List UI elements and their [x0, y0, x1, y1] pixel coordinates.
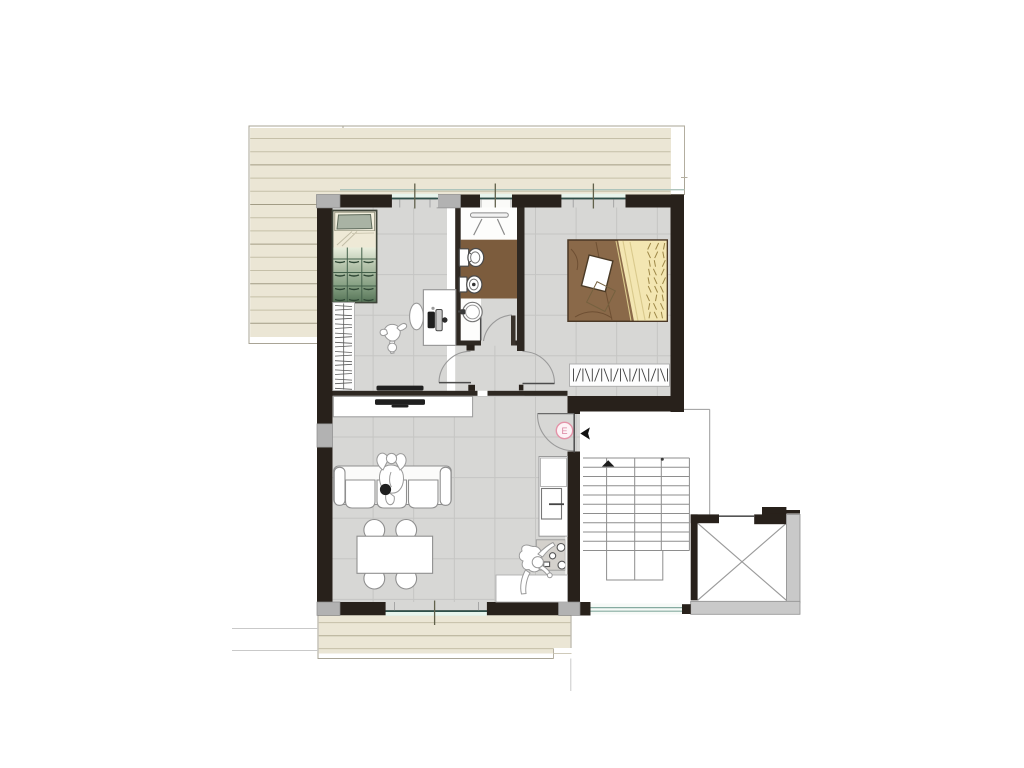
svg-text:E: E	[561, 426, 567, 436]
